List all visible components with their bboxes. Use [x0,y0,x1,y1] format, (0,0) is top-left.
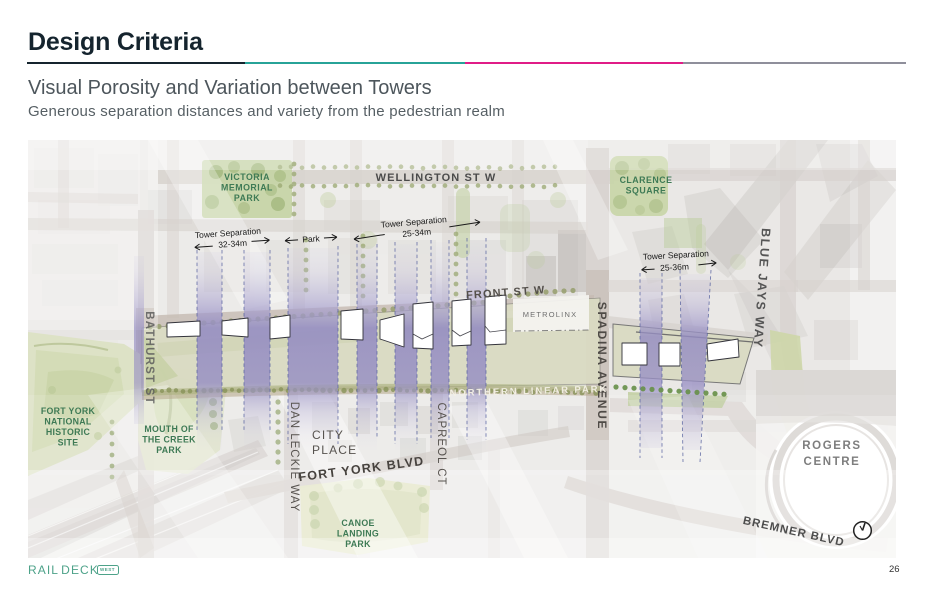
svg-text:CAPREOL CT: CAPREOL CT [435,402,447,485]
svg-text:MEMORIAL: MEMORIAL [221,183,273,193]
svg-text:BATHURST ST: BATHURST ST [143,311,155,404]
svg-text:CANOE: CANOE [341,518,374,528]
svg-text:CENTRE: CENTRE [804,456,861,468]
svg-text:PARK: PARK [234,193,260,203]
svg-text:32-34m: 32-34m [218,238,247,250]
svg-text:MOUTH OF: MOUTH OF [144,424,194,434]
svg-text:PLACE: PLACE [312,443,357,457]
svg-text:SQUARE: SQUARE [626,186,667,196]
svg-text:Park: Park [302,233,321,244]
svg-text:NATIONAL: NATIONAL [44,417,92,427]
svg-text:CLARENCE: CLARENCE [620,175,673,185]
svg-text:THE CREEK: THE CREEK [142,435,196,445]
svg-text:HISTORIC: HISTORIC [46,427,91,437]
svg-text:METROLINX: METROLINX [523,310,578,319]
svg-text:FORT YORK: FORT YORK [41,406,96,416]
svg-text:SPADINA AVENUE: SPADINA AVENUE [595,302,609,430]
svg-text:25-36m: 25-36m [660,261,689,272]
svg-text:PARK: PARK [345,539,371,549]
svg-text:ROGERS: ROGERS [802,440,861,452]
svg-text:PARK: PARK [156,445,182,455]
svg-text:CITY: CITY [312,428,344,442]
svg-text:DAN LECKIE WAY: DAN LECKIE WAY [288,402,300,513]
svg-text:SITE: SITE [58,438,79,448]
svg-text:LANDING: LANDING [337,529,379,539]
svg-text:VICTORIA: VICTORIA [224,172,270,182]
svg-text:WELLINGTON ST W: WELLINGTON ST W [376,172,497,184]
